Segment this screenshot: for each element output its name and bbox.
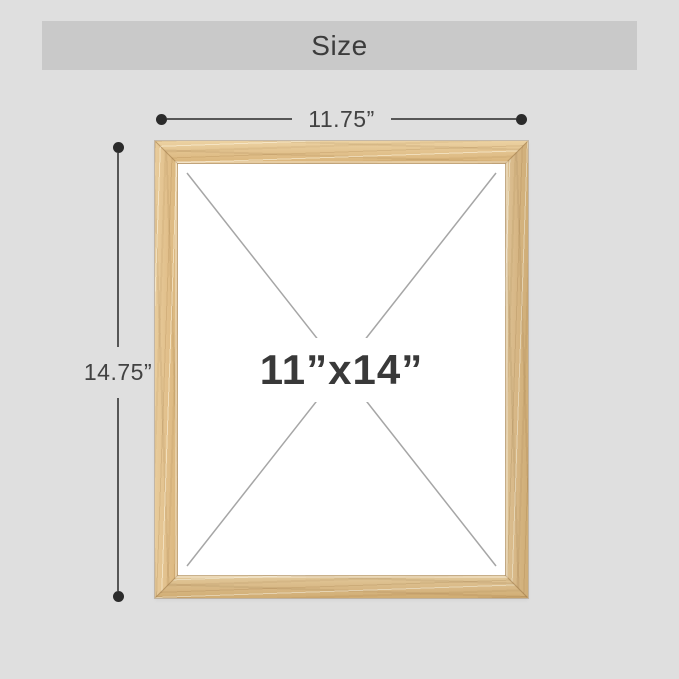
width-dimension-label: 11.75” <box>292 106 391 133</box>
dimension-endpoint-dot <box>113 142 124 153</box>
size-diagram-page: Size 11.75” 14.75” <box>0 0 679 679</box>
frame-bottom-rail <box>155 575 528 598</box>
dimension-endpoint-dot <box>113 591 124 602</box>
height-dimension-callout: 14.75” <box>107 142 129 602</box>
frame-left-rail <box>155 141 178 598</box>
frame-right-rail <box>505 141 528 598</box>
dimension-endpoint-dot <box>516 114 527 125</box>
width-dimension-callout: 11.75” <box>156 108 527 130</box>
frame-size-label: 11”x14” <box>244 338 439 402</box>
dimension-line <box>391 118 516 120</box>
dimension-endpoint-dot <box>156 114 167 125</box>
height-dimension-label: 14.75” <box>84 347 152 398</box>
section-title: Size <box>311 30 367 62</box>
dimension-line <box>117 398 119 592</box>
dimension-line <box>167 118 292 120</box>
frame-opening: 11”x14” <box>178 164 505 575</box>
frame-top-rail <box>155 141 528 164</box>
picture-frame: 11”x14” <box>155 141 528 598</box>
dimension-line <box>117 153 119 347</box>
section-header-bar: Size <box>42 21 637 70</box>
